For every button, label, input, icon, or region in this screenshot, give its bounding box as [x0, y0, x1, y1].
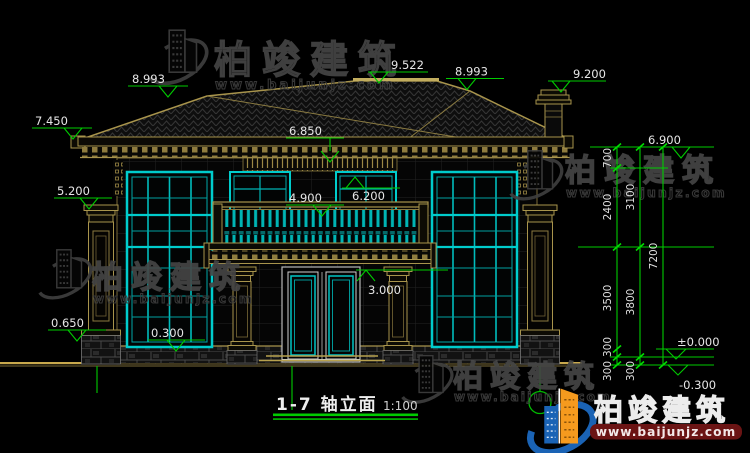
- slat-band: [243, 158, 397, 171]
- level-value: ±0.000: [677, 335, 720, 349]
- watermark-site-text: www.baijunjz.com: [93, 292, 254, 306]
- title-text: 1-7 轴立面: [276, 394, 378, 415]
- level-value: 4.900: [289, 191, 322, 205]
- title-scale: 1:100: [383, 399, 418, 413]
- level-value: 9.522: [391, 58, 424, 72]
- watermark-brand-text: 柏竣建筑: [565, 153, 721, 189]
- eave-end-right: [564, 136, 573, 148]
- level-value: 5.200: [57, 184, 90, 198]
- elevation-drawing: 柏竣建筑 www.baijunjz.com 柏竣建筑 www.baijunjz.…: [0, 0, 750, 453]
- watermark-site-text: www.baijunjz.com: [454, 390, 612, 404]
- dim-segment: 3500: [602, 285, 614, 312]
- balcony-post-left: [213, 204, 222, 244]
- vent-strip-left: [113, 160, 123, 196]
- watermark-site-text: www.baijunjz.com: [566, 186, 727, 200]
- tall-window-right: [432, 172, 517, 347]
- level-value: 0.650: [51, 316, 84, 330]
- dim-segment: 3100: [625, 184, 637, 211]
- level-value: 6.900: [648, 133, 681, 147]
- level-value: 7.450: [35, 114, 68, 128]
- cornice: [71, 136, 573, 158]
- watermark-site-text: www.baijunjz.com: [215, 78, 396, 93]
- door-leaf-left: [288, 272, 318, 359]
- drawing-title: 1-7 轴立面 1:100: [273, 394, 418, 420]
- level-value: -0.300: [679, 378, 716, 392]
- title-underline-2: [273, 418, 418, 420]
- level-chevron: [668, 365, 688, 375]
- level-triangle: [159, 86, 177, 97]
- dim-segment: 3800: [625, 289, 637, 316]
- dim-segment: 300: [602, 337, 614, 357]
- watermark-brand-text: 柏竣建筑: [214, 38, 406, 82]
- level-value: 3.000: [368, 283, 401, 297]
- dim-total: 7200: [648, 243, 660, 270]
- dim-segment: 700: [602, 148, 614, 168]
- level-value: 8.993: [132, 72, 165, 86]
- dim-segment: 300: [625, 361, 637, 381]
- dim-segment: 300: [602, 361, 614, 381]
- canopy-dentils: [209, 251, 431, 260]
- level-value: 6.850: [289, 124, 322, 138]
- cad-elevation-screenshot: 柏竣建筑 www.baijunjz.com 柏竣建筑 www.baijunjz.…: [0, 0, 750, 453]
- level-value: 0.300: [151, 326, 184, 340]
- balcony-post-right: [419, 204, 428, 244]
- watermark-top: 柏竣建筑 www.baijunjz.com: [141, 30, 406, 93]
- site-logo-url: www.baijunjz.com: [596, 425, 736, 439]
- watermark-logo-icon: [32, 250, 97, 306]
- title-underline: [273, 414, 418, 417]
- door-leaf-right: [326, 272, 356, 359]
- level-value: 9.200: [573, 67, 606, 81]
- center-window-left: [230, 172, 290, 215]
- level-value: 6.200: [352, 189, 385, 203]
- site-logo-brand: 柏竣建筑: [594, 393, 730, 427]
- watermark-brand-text: 柏竣建筑: [92, 260, 248, 296]
- level-value: 8.993: [455, 65, 488, 79]
- dim-segment: 2400: [602, 194, 614, 221]
